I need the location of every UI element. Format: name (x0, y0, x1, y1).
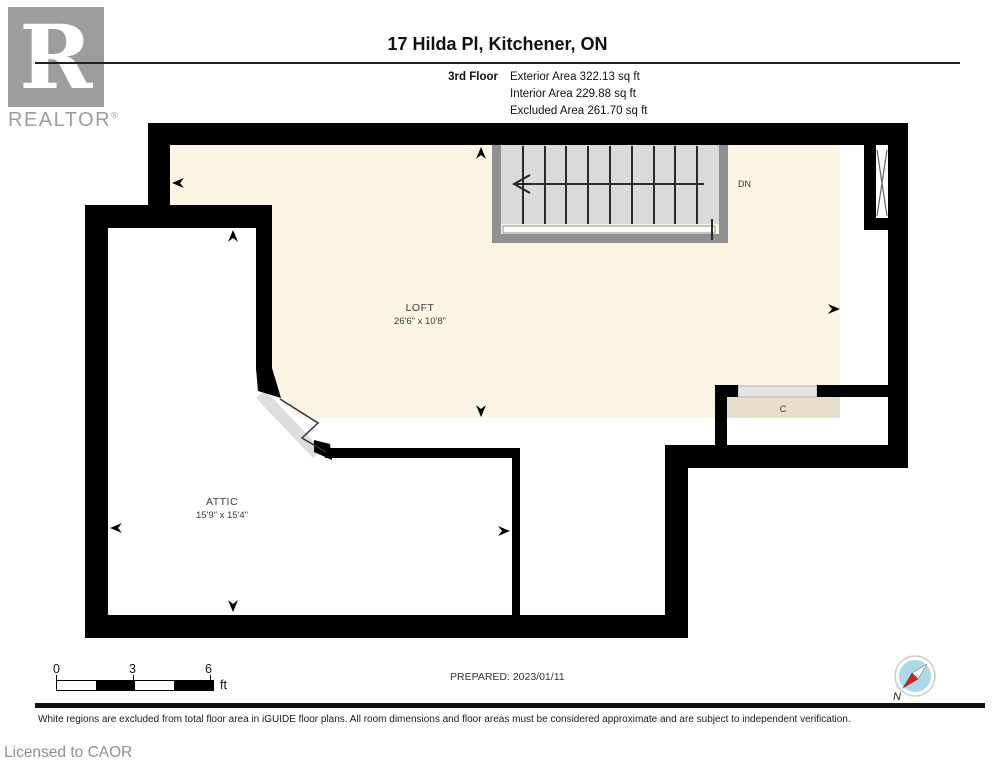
wall-closet-stub (715, 385, 738, 397)
scale-tick-6: 6 (205, 662, 212, 676)
realtor-logo-text: REALTOR® (8, 109, 120, 132)
wall-attic-right-upper (256, 228, 272, 370)
wall-upper-left (148, 123, 170, 228)
floor-label: 3rd Floor (370, 69, 498, 120)
interior-area: Interior Area 229.88 sq ft (510, 86, 647, 103)
wall-attic-top (85, 205, 272, 228)
scale-tick-3: 3 (129, 662, 136, 676)
dim-arrow-left-attic (110, 523, 122, 533)
floor-info: 3rd Floor Exterior Area 322.13 sq ft Int… (370, 69, 647, 120)
license-text: Licensed to CAOR (4, 744, 132, 762)
prepared-date: PREPARED: 2023/01/11 (450, 671, 565, 683)
wall-mid-vertical (665, 445, 688, 638)
dim-arrow-right-attic (498, 526, 510, 536)
wall-bottom-right (665, 445, 908, 468)
wall-inner-horizontal (325, 448, 520, 458)
area-summary: Exterior Area 322.13 sq ft Interior Area… (510, 69, 647, 120)
footer-divider (35, 703, 985, 708)
realtor-logo-letter: R (19, 13, 92, 101)
exterior-area: Exterior Area 322.13 sq ft (510, 69, 647, 86)
realtor-logo: R REALTOR® (8, 7, 120, 132)
wall-left (85, 205, 108, 638)
compass-north-label: N (893, 691, 901, 703)
closet-label: C (780, 404, 787, 414)
scale-tick-0: 0 (53, 662, 60, 676)
stair-frame-right (719, 145, 728, 243)
header-divider (35, 62, 960, 64)
closet-sliding-door (738, 386, 817, 397)
loft-dimensions: 26'6" x 10'8" (394, 316, 446, 327)
disclaimer-text: White regions are excluded from total fl… (38, 714, 988, 725)
wall-closet-right (817, 385, 888, 397)
scale-bar (56, 680, 214, 691)
compass-icon: N (886, 652, 944, 704)
wall-window-stub (864, 145, 876, 230)
dim-arrow-down-attic (228, 600, 238, 612)
wall-bottom (85, 615, 688, 638)
window-icon (877, 150, 887, 216)
wall-closet-left (715, 385, 727, 468)
dim-arrow-up-attic (228, 230, 238, 242)
page-title: 17 Hilda Pl, Kitchener, ON (0, 34, 995, 55)
stair-frame-bottom (492, 234, 728, 243)
wall-right (888, 123, 908, 468)
loft-label: LOFT (406, 302, 435, 314)
stair-frame-left (492, 145, 501, 243)
attic-label: ATTIC (206, 496, 238, 508)
registered-mark: ® (111, 110, 119, 120)
stair-railing (503, 226, 715, 233)
wall-attic-right-lower (512, 448, 520, 638)
floorplan-page: R REALTOR® 17 Hilda Pl, Kitchener, ON 3r… (0, 0, 995, 768)
wall-top (148, 123, 908, 145)
excluded-area: Excluded Area 261.70 sq ft (510, 103, 647, 120)
attic-dimensions: 15'9" x 15'4" (196, 510, 248, 521)
realtor-logo-icon: R (8, 7, 104, 107)
staircase (492, 145, 728, 243)
wall-below-window (864, 218, 888, 230)
scale-unit: ft (220, 678, 227, 692)
stairs-dn-label: DN (738, 179, 751, 189)
